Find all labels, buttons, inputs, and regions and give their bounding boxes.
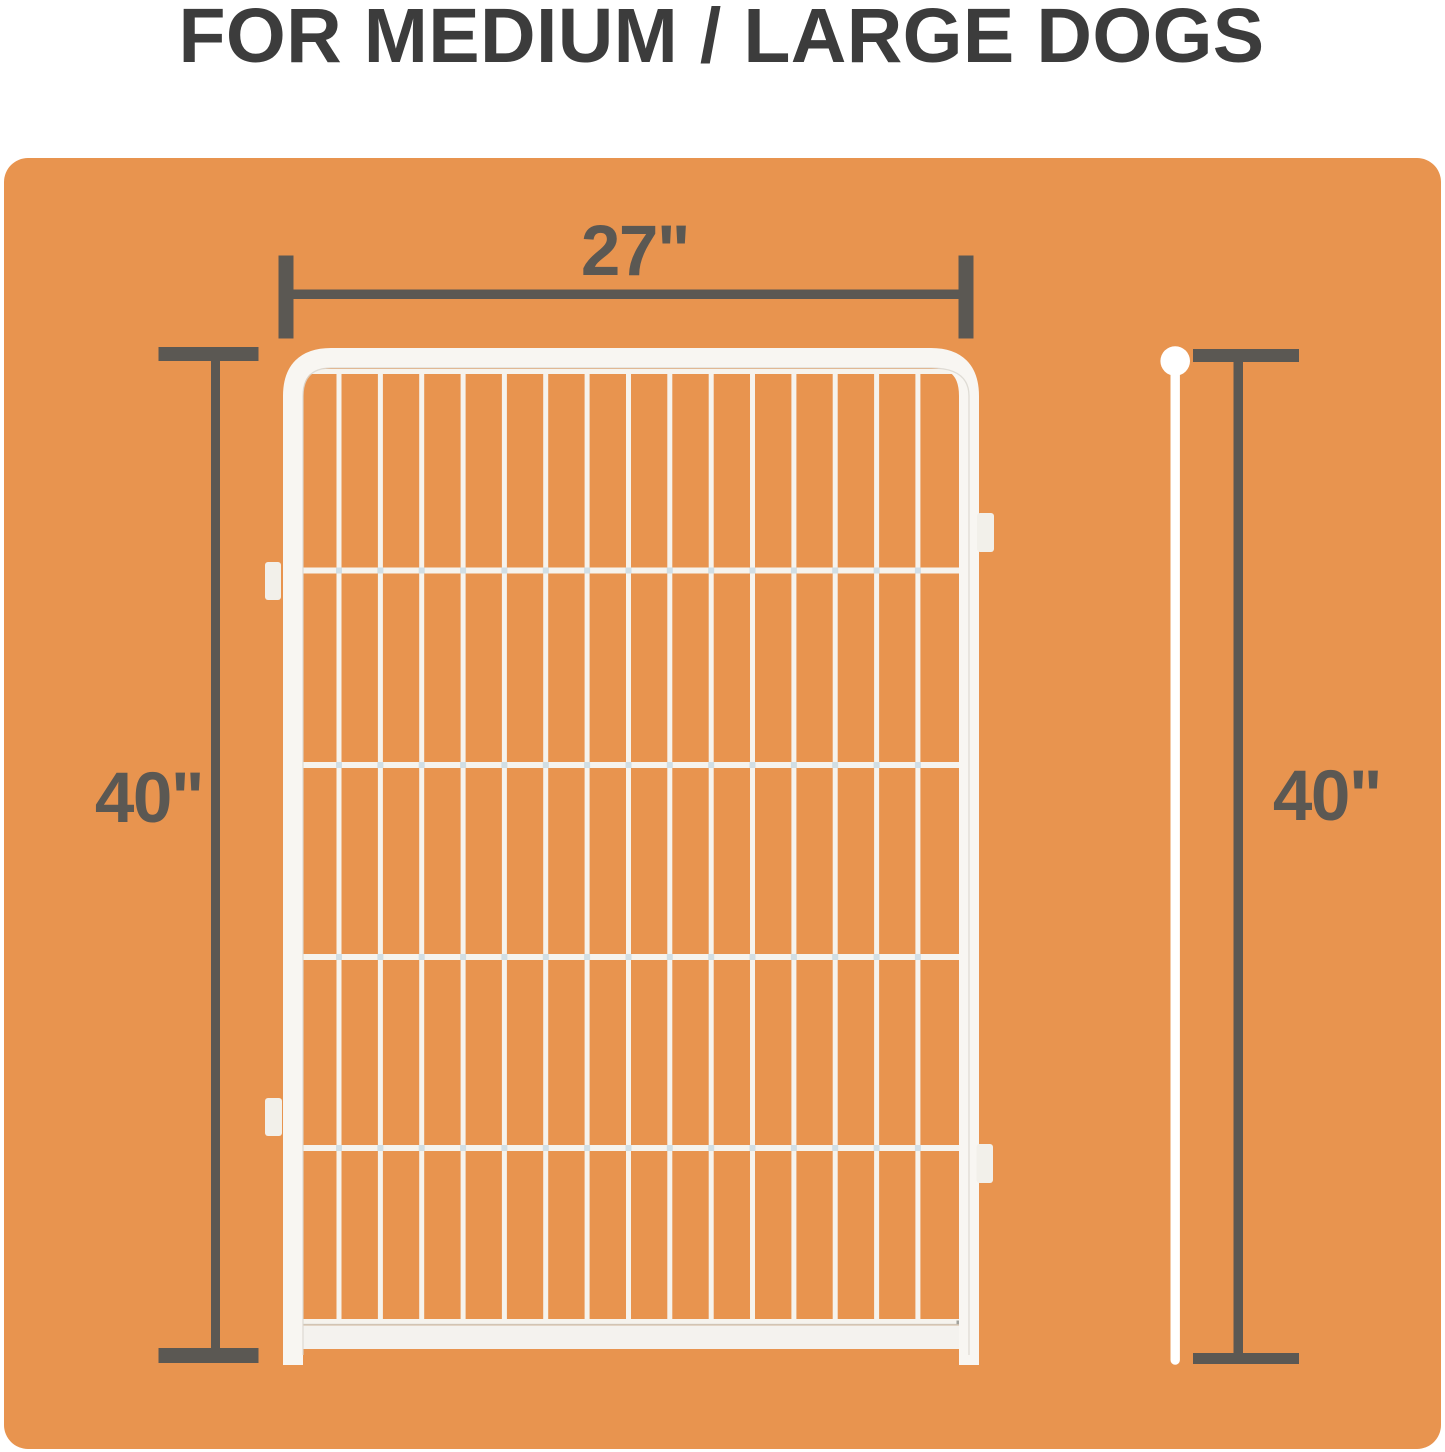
- svg-text:27": 27": [581, 212, 689, 291]
- svg-text:FOR MEDIUM / LARGE DOGS: FOR MEDIUM / LARGE DOGS: [178, 0, 1264, 79]
- svg-text:40": 40": [1273, 757, 1381, 836]
- svg-text:40": 40": [95, 759, 203, 838]
